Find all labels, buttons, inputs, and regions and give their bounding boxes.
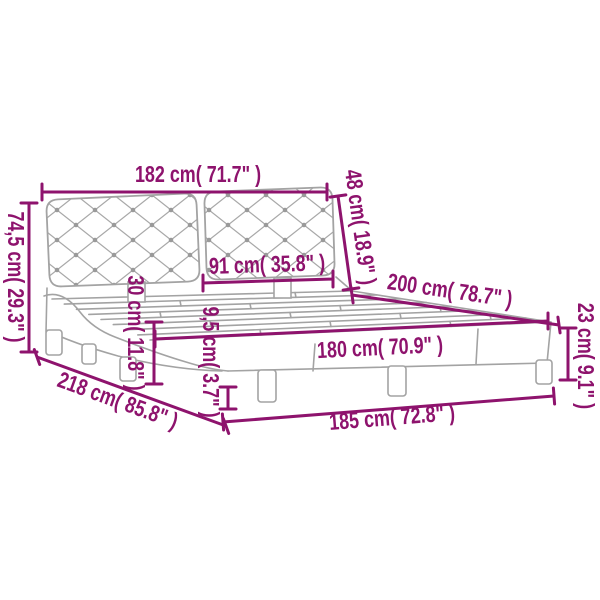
leg bbox=[258, 370, 276, 402]
leg bbox=[388, 366, 406, 396]
product-diagram-svg: 182 cm( 71.7" ) 74,5 cm( 29.3" ) 48 cm( … bbox=[0, 0, 600, 600]
leg bbox=[536, 360, 552, 384]
dim-label-headboard-width: 182 cm( 71.7" ) bbox=[135, 162, 261, 188]
dim-label-total-length: 218 cm( 85.8" ) bbox=[54, 367, 181, 434]
dim-label-headboard-panel-height: 48 cm( 18.9" ) bbox=[339, 168, 381, 287]
product-dimension-diagram: 182 cm( 71.7" ) 74,5 cm( 29.3" ) 48 cm( … bbox=[0, 0, 600, 600]
dim-label-frame-base-height: 9,5 cm( 3.7" ) bbox=[197, 306, 223, 417]
tufted-headboard bbox=[47, 187, 335, 302]
dim-label-mattress-width: 180 cm( 70.9" ) bbox=[316, 332, 443, 364]
dim-label-headboard-total-height: 74,5 cm( 29.3" ) bbox=[2, 211, 28, 342]
dim-label-total-width: 185 cm( 72.8" ) bbox=[328, 400, 456, 435]
dim-label-headboard-panel-width: 91 cm( 35.8" ) bbox=[209, 250, 326, 279]
dim-label-frame-side-height: 30 cm( 11.8" ) bbox=[122, 275, 148, 390]
leg bbox=[82, 344, 96, 364]
leg bbox=[46, 330, 62, 355]
dim-label-leg-height: 23 cm( 9.1" ) bbox=[572, 303, 598, 409]
headboard-left-panel bbox=[47, 194, 200, 287]
